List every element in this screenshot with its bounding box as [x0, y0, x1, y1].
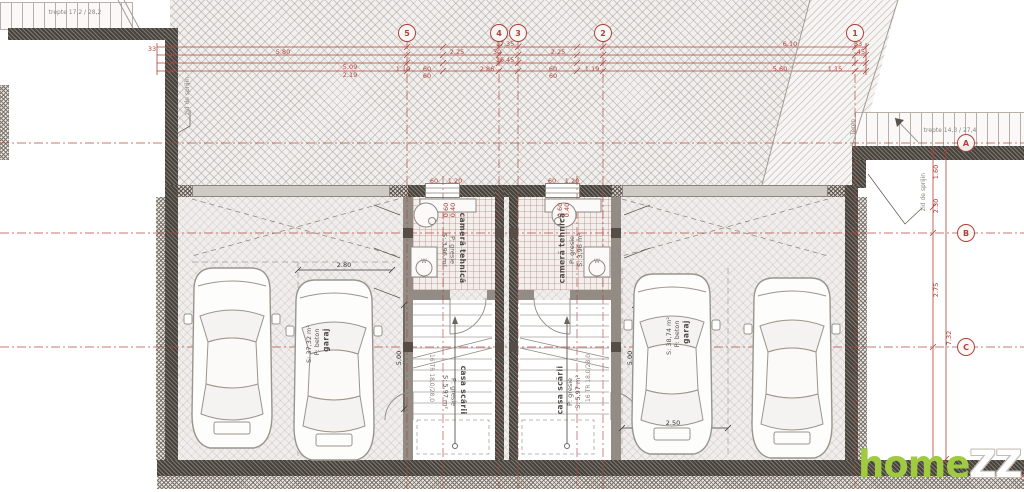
dim-label: 1.20: [565, 178, 579, 185]
dim-label: 2.30: [933, 199, 940, 213]
axis-marker-B: B: [957, 224, 975, 242]
dim-label: 5.80: [276, 49, 290, 56]
axis-marker-3: 3: [509, 24, 527, 42]
dim-label: 60: [549, 73, 557, 80]
dim-label: 2.50: [666, 420, 680, 427]
dim-label: 2.75: [933, 283, 940, 297]
washer-label: W: [421, 259, 427, 265]
dim-label: 1.10: [396, 66, 410, 73]
garage-door-swing-lines: [192, 199, 828, 256]
room-label: P: beton: [674, 321, 681, 348]
axis-marker-5: 5: [398, 24, 416, 42]
axis-marker-C: C: [957, 338, 975, 356]
axis-marker-1: 1: [846, 24, 864, 42]
dim-label: 0.40: [450, 203, 457, 217]
room-label: S: 5,97 m²: [575, 375, 582, 409]
room-label: P: beton: [314, 329, 321, 356]
dim-label: 5.60: [773, 66, 787, 73]
car: [286, 280, 382, 460]
room-label: casa scării: [556, 366, 564, 415]
car: [744, 278, 840, 458]
dim-label: 30: [493, 49, 501, 56]
dim-label: 2.19: [343, 72, 357, 79]
room-label: P: gresie: [450, 378, 457, 406]
homezz-watermark: homeZZ.ro: [858, 446, 1024, 483]
dim-label: 60: [430, 178, 438, 185]
room-label: cameră tehnică: [558, 213, 566, 284]
dim-label: 1.60: [933, 165, 940, 179]
dim-label: 16.45: [496, 57, 515, 64]
terrain-label: Teren: [851, 119, 857, 135]
dim-label: 60: [423, 73, 431, 80]
room-label: garaj: [322, 328, 330, 352]
plan-linework: [0, 0, 1024, 492]
dim-label: 60: [548, 178, 556, 185]
retaining-wall-label: zid de sprijin: [921, 173, 927, 211]
room-label: S: 3,96 m²: [577, 233, 584, 267]
axis-marker-A: A: [957, 134, 975, 152]
dim-label: 5.00: [627, 351, 634, 365]
car: [624, 274, 720, 454]
dim-label: 6.10: [783, 41, 797, 48]
room-label: casa scării: [459, 366, 467, 415]
retaining-wall-label: zid de sprijin: [185, 77, 191, 115]
stair-treads-label: 16 TR 18,0/28,0: [586, 354, 592, 402]
room-label: P: gresie: [569, 236, 576, 264]
dim-label: trepte 14,3 / 27,4: [924, 128, 977, 134]
stair-direction-arrows: [452, 316, 570, 449]
dim-label: 2.86: [480, 66, 494, 73]
room-label: P: gresie: [449, 236, 456, 264]
dim-label: 7.32: [946, 331, 953, 345]
dim-label: 2.25: [551, 49, 565, 56]
room-label: S: 3,96 m²: [441, 233, 448, 267]
dim-label: 5.09: [343, 64, 357, 71]
room-label: S: 37,32 m²: [306, 325, 313, 363]
floor-plan: homeZZ.ro 17.356.10335.802.25302.254516.…: [0, 0, 1024, 492]
dim-label: 1.20: [448, 178, 462, 185]
axis-marker-2: 2: [594, 24, 612, 42]
dim-label: 45: [857, 49, 865, 56]
stair-treads-label: 16 TR 18,0/28,0: [428, 354, 434, 402]
room-label: cameră tehnică: [458, 213, 466, 284]
room-label: S: 5,97 m²: [442, 375, 449, 409]
room-label: S: 38,74 m²: [666, 317, 673, 355]
car: [184, 268, 280, 448]
dim-label: 1.19: [585, 66, 599, 73]
axis-marker-4: 4: [490, 24, 508, 42]
dim-label: 1.15: [828, 66, 842, 73]
axis-grid-lines: [0, 40, 1024, 488]
dimension-ticks: [169, 44, 869, 74]
washer-label: W: [594, 259, 600, 265]
dim-label: 33: [148, 46, 156, 53]
watermark-zz: ZZ: [969, 443, 1021, 486]
dim-label: 5.00: [396, 351, 403, 365]
dim-label: 2.80: [337, 262, 351, 269]
dim-label: trepte 17,2 / 28,2: [49, 10, 102, 16]
watermark-home: home: [858, 443, 969, 486]
dim-label: 2.25: [450, 49, 464, 56]
right-dimension-lines: [930, 147, 949, 462]
room-label: P: gresie: [567, 378, 574, 406]
cars: [184, 268, 840, 460]
room-label: garaj: [682, 320, 690, 344]
window-frame-lines: [425, 188, 580, 193]
